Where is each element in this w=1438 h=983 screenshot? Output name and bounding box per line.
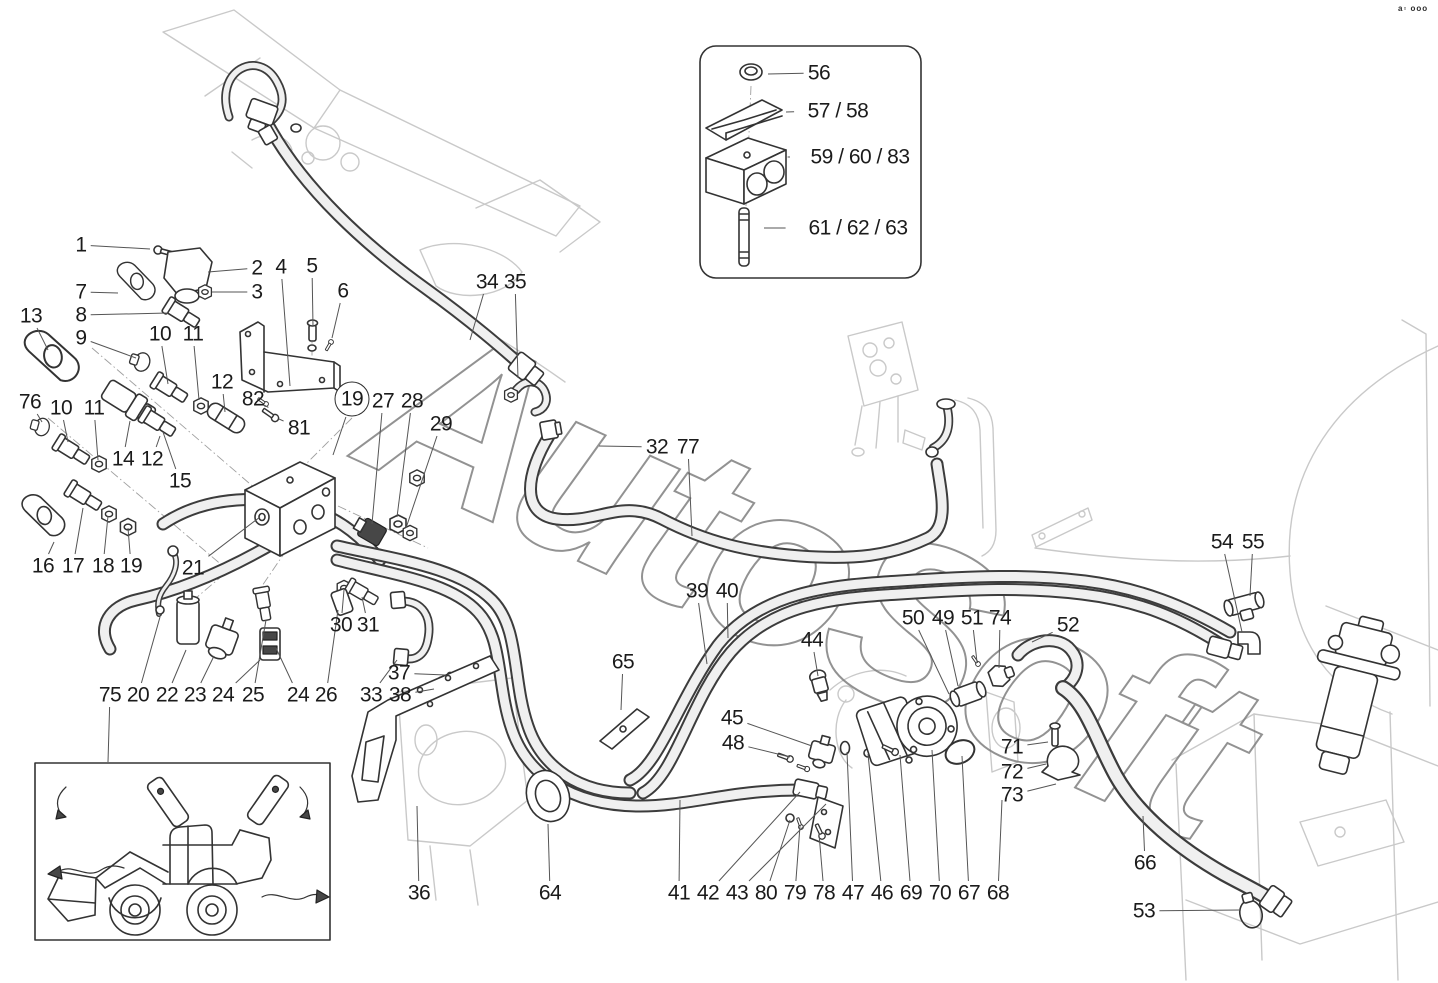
callout-37: 37 [388, 663, 410, 684]
callout-19: 19 [120, 556, 142, 577]
callout-21: 21 [182, 558, 204, 579]
part-22-canister [177, 591, 199, 644]
callout-41: 41 [668, 883, 690, 904]
callout-4: 4 [275, 257, 286, 278]
leader-line [312, 278, 313, 326]
callout-24: 24 [212, 685, 234, 706]
callout-54: 54 [1211, 532, 1233, 553]
callout-49: 49 [932, 608, 954, 629]
leader-line [108, 707, 110, 762]
callout-75: 75 [99, 685, 121, 706]
leader-line [727, 603, 728, 638]
leader-line [125, 421, 130, 447]
part-23-valve [202, 615, 242, 663]
callout-16: 16 [32, 556, 54, 577]
callout-50: 50 [902, 608, 924, 629]
leader-line [847, 752, 853, 881]
callout-11: 11 [84, 398, 105, 419]
callout-1: 1 [75, 235, 86, 256]
callout-78: 78 [813, 883, 835, 904]
callout-40: 40 [716, 581, 738, 602]
callout-33: 33 [360, 685, 382, 706]
callout-51: 51 [961, 608, 983, 629]
leader-line [276, 648, 292, 683]
corner-marks: a▫ ooo [1398, 4, 1428, 13]
callout-70: 70 [929, 883, 951, 904]
callout-23: 23 [184, 685, 206, 706]
callout-7: 7 [75, 282, 86, 303]
parts-diagram-page: AutoSoft [0, 0, 1438, 983]
callout-31: 31 [357, 615, 379, 636]
callout-64: 64 [539, 883, 561, 904]
callout-14: 14 [112, 449, 134, 470]
callout-18: 18 [92, 556, 114, 577]
leader-line [719, 792, 800, 881]
part-36-bracket [352, 656, 499, 802]
callout-27: 27 [372, 391, 394, 412]
leader-line [768, 73, 804, 74]
callout-10: 10 [50, 398, 72, 419]
part-45-valve [806, 733, 837, 770]
callout-2: 2 [251, 258, 262, 279]
callout-11: 11 [183, 324, 204, 345]
leader-line [91, 313, 168, 315]
leader-line [172, 650, 186, 683]
leader-line [621, 674, 623, 710]
part-61-62-63-stud [739, 208, 749, 266]
callout-10: 10 [149, 324, 171, 345]
leader-line [141, 617, 160, 683]
callout-17: 17 [62, 556, 84, 577]
part-59-60-83-block [706, 138, 786, 204]
callout-13: 13 [20, 306, 42, 327]
callout-48: 48 [722, 733, 744, 754]
callout-47: 47 [842, 883, 864, 904]
callout-20: 20 [127, 685, 149, 706]
callout-71: 71 [1001, 737, 1023, 758]
callout-25: 25 [242, 685, 264, 706]
callout-72: 72 [1001, 762, 1023, 783]
callout-43: 43 [726, 883, 748, 904]
callout-45: 45 [721, 708, 743, 729]
leader-line [417, 806, 419, 881]
callout-3: 3 [251, 282, 262, 303]
callout-26: 26 [315, 685, 337, 706]
leader-line [104, 516, 108, 554]
callout-46: 46 [871, 883, 893, 904]
callout-52: 52 [1057, 615, 1079, 636]
part-55-tee [1223, 591, 1268, 625]
leader-line [75, 508, 83, 554]
leader-line [747, 723, 812, 746]
leader-line [91, 246, 150, 249]
leader-line [748, 747, 790, 757]
diagram-canvas: AutoSoft [0, 0, 1438, 983]
leader-line [868, 754, 881, 881]
callout-56: 56 [808, 63, 830, 84]
callout-65: 65 [612, 652, 634, 673]
callout-6: 6 [337, 281, 348, 302]
callout-5: 5 [306, 256, 317, 277]
callout-32: 32 [646, 437, 668, 458]
leader-line [208, 269, 247, 272]
callout-22: 22 [156, 685, 178, 706]
leader-line [1225, 554, 1242, 632]
leader-line [999, 800, 1003, 881]
leader-line [1159, 910, 1240, 911]
callout-77: 77 [677, 437, 699, 458]
part-43-plate [810, 797, 843, 848]
callout-66: 66 [1134, 853, 1156, 874]
leader-line [201, 656, 214, 683]
leader-line [796, 826, 800, 881]
callout-29: 29 [430, 414, 452, 435]
callout-57-58: 57 / 58 [808, 101, 869, 122]
callout-24: 24 [287, 685, 309, 706]
part-21-valve-block [245, 462, 335, 556]
callout-80: 80 [755, 883, 777, 904]
leader-line [156, 436, 160, 447]
callout-53: 53 [1133, 901, 1155, 922]
leader-line [279, 419, 284, 421]
callout-55: 55 [1242, 532, 1264, 553]
callout-38: 38 [389, 685, 411, 706]
leader-line [900, 755, 910, 881]
part-filter [1291, 608, 1411, 782]
callout-39: 39 [686, 581, 708, 602]
leader-line [332, 303, 340, 338]
callout-73: 73 [1001, 785, 1023, 806]
callout-67: 67 [958, 883, 980, 904]
callout-12: 12 [141, 449, 163, 470]
callout-82: 82 [242, 389, 264, 410]
callout-61-62-63: 61 / 62 / 63 [808, 218, 907, 239]
callout-15: 15 [169, 471, 191, 492]
callout-36: 36 [408, 883, 430, 904]
leader-line [333, 417, 346, 455]
leader-line [95, 420, 98, 460]
leader-line [414, 674, 446, 675]
leader-line [599, 446, 642, 447]
callout-68: 68 [987, 883, 1009, 904]
leader-line [236, 660, 260, 683]
callout-34: 34 [476, 272, 498, 293]
leader-line [163, 432, 176, 469]
callout-8: 8 [75, 305, 86, 326]
callout-30: 30 [330, 615, 352, 636]
callout-44: 44 [801, 630, 823, 651]
wheel-loader [48, 825, 271, 935]
leader-line [194, 346, 199, 400]
leader-line [548, 824, 550, 881]
leader-line [91, 292, 118, 293]
callout-74: 74 [989, 608, 1011, 629]
leader-line [1250, 554, 1252, 596]
leader-line [91, 342, 136, 359]
inset-machine-box [35, 763, 330, 940]
leader-line [679, 800, 680, 881]
callout-35: 35 [504, 272, 526, 293]
callout-79: 79 [784, 883, 806, 904]
leader-line [49, 542, 55, 554]
leader-line [770, 820, 790, 881]
callout-9: 9 [75, 328, 86, 349]
callout-76: 76 [19, 392, 41, 413]
callout-42: 42 [697, 883, 719, 904]
callout-69: 69 [900, 883, 922, 904]
callout-19: 19 [335, 382, 370, 417]
callout-12: 12 [211, 372, 233, 393]
callout-28: 28 [401, 391, 423, 412]
callout-59-60-83: 59 / 60 / 83 [810, 147, 909, 168]
callout-81: 81 [288, 418, 310, 439]
